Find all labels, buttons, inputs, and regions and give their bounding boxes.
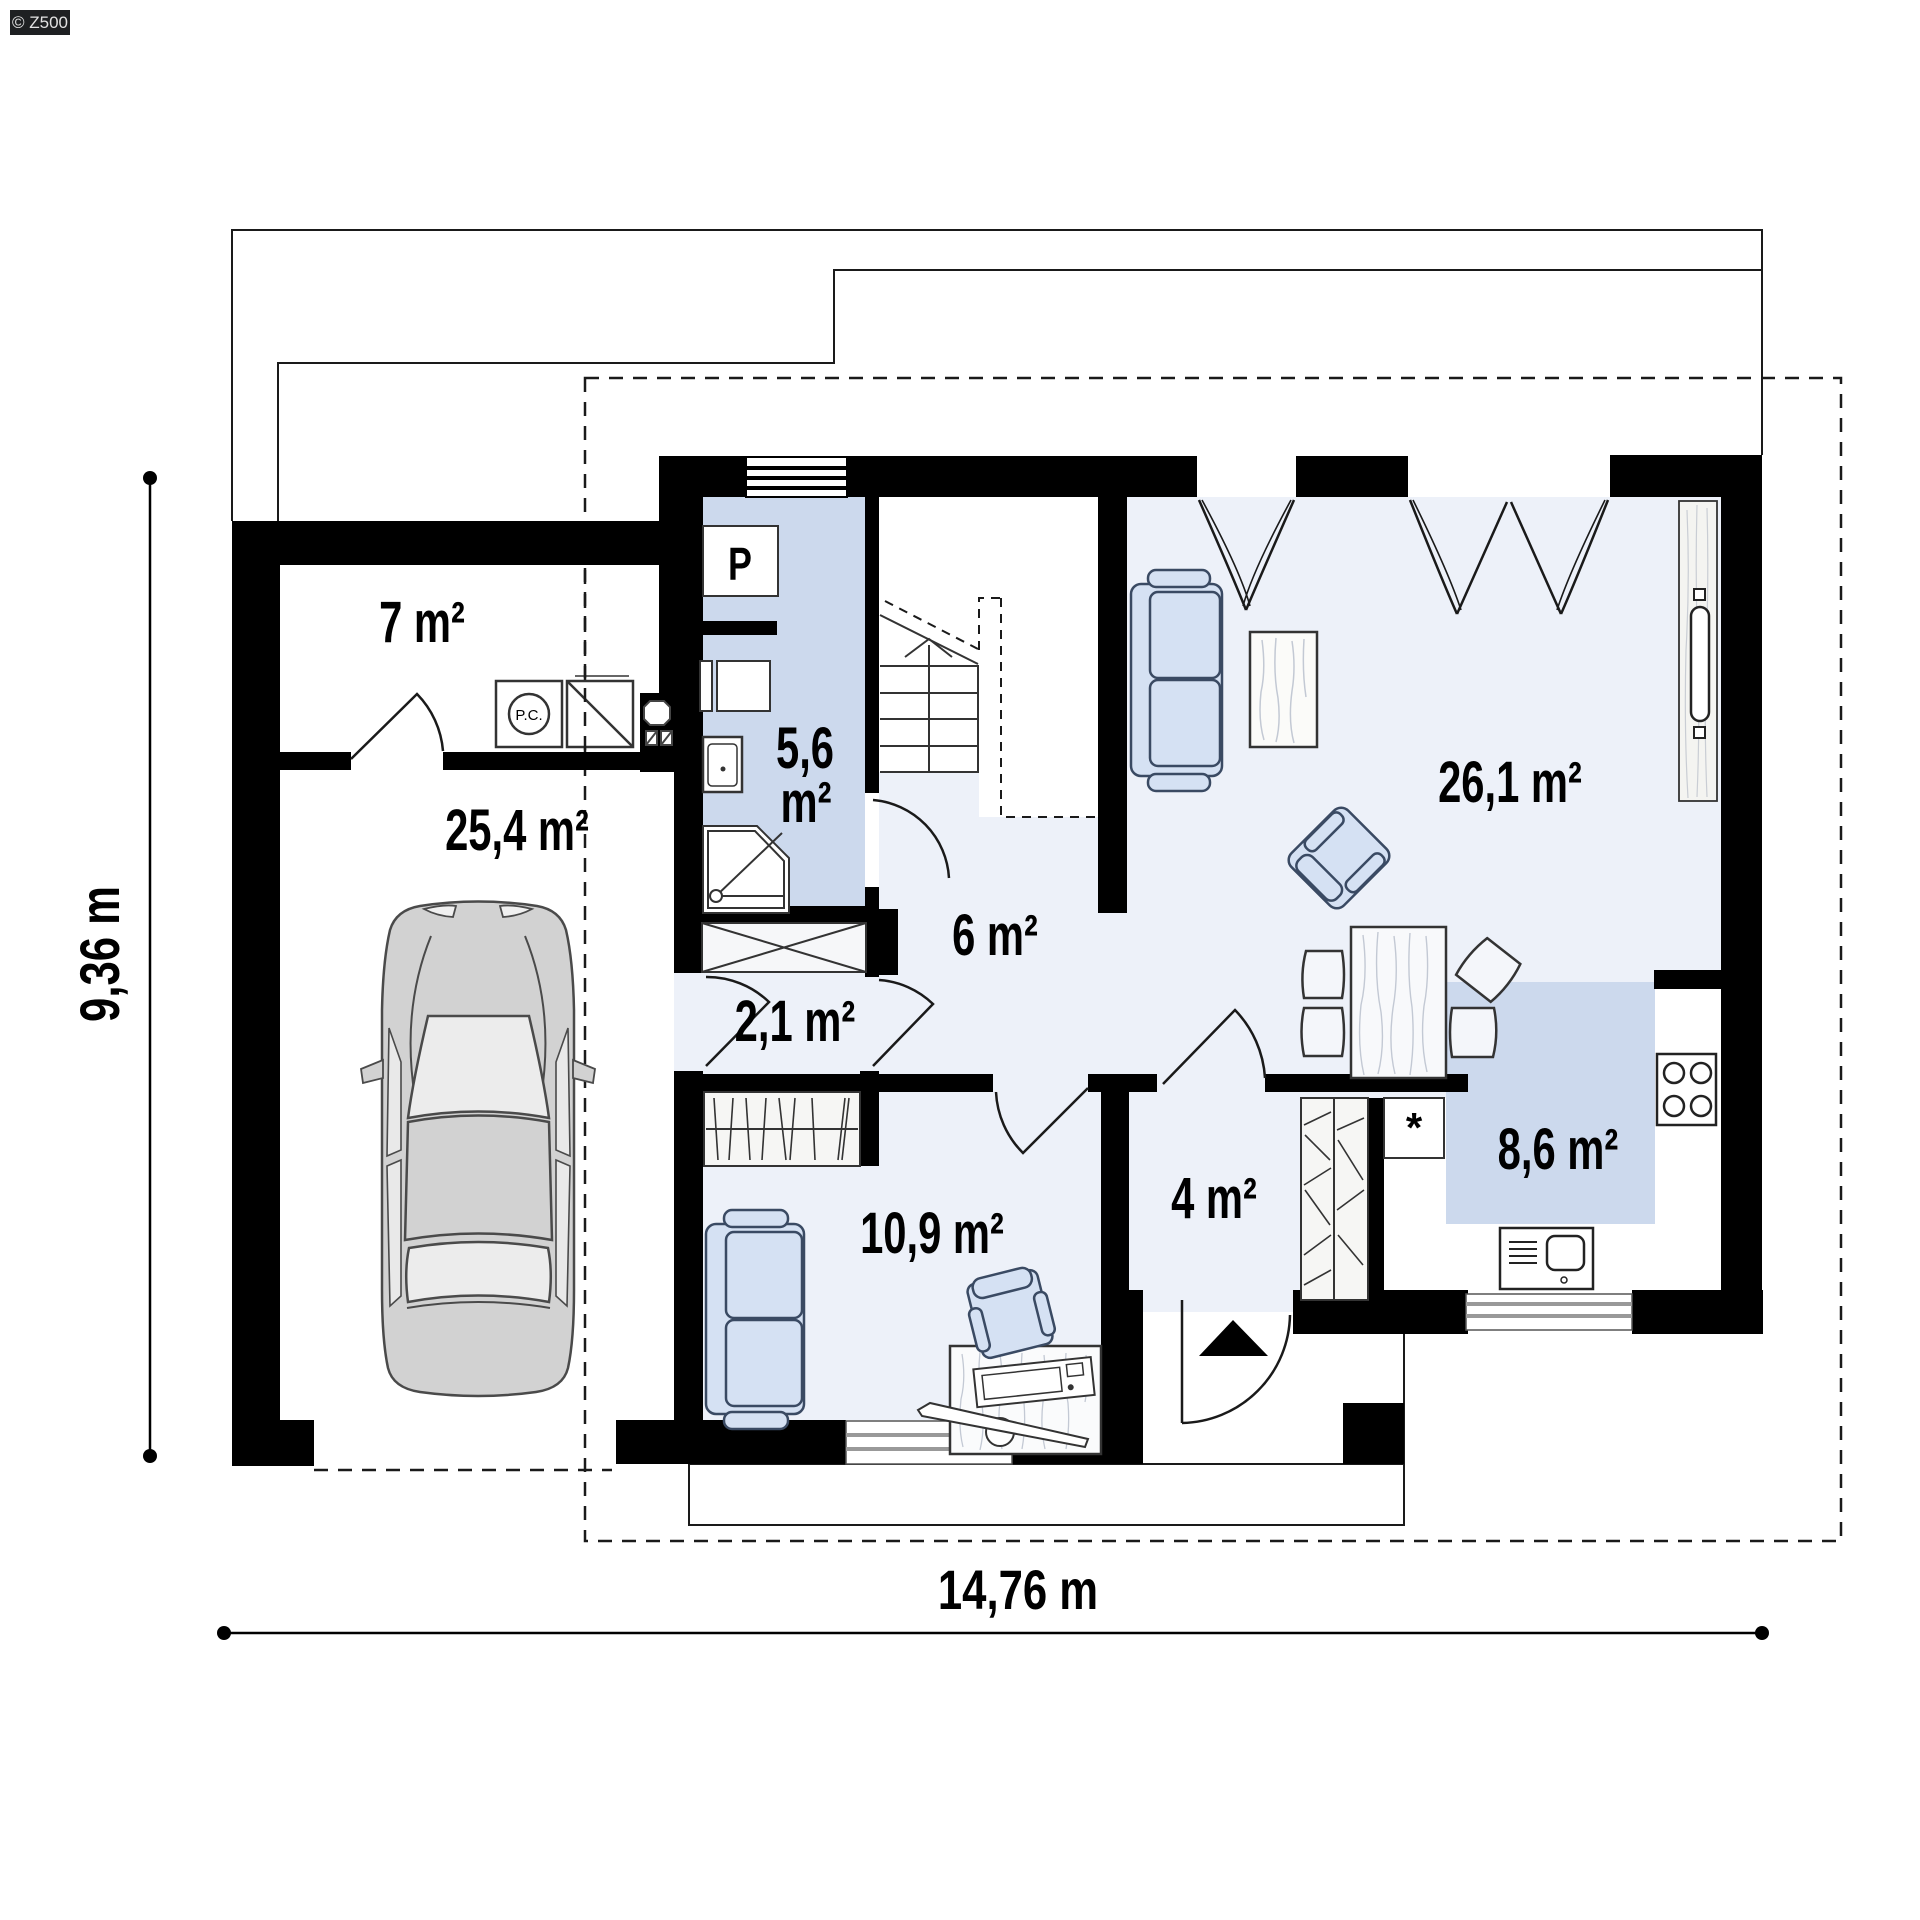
svg-text:10,9 m²: 10,9 m² [860, 1200, 1004, 1265]
svg-text:26,1 m²: 26,1 m² [1438, 749, 1582, 814]
svg-text:25,4 m²: 25,4 m² [445, 797, 589, 862]
svg-text:9,36 m: 9,36 m [69, 886, 131, 1022]
svg-text:2,1 m²: 2,1 m² [735, 988, 856, 1053]
svg-text:© Z500: © Z500 [12, 13, 68, 32]
svg-text:14,76 m: 14,76 m [938, 1559, 1098, 1621]
svg-text:P: P [728, 539, 752, 590]
svg-text:P.C.: P.C. [515, 707, 542, 724]
svg-text:7 m²: 7 m² [379, 589, 465, 654]
svg-text:4 m²: 4 m² [1171, 1165, 1257, 1230]
svg-text:m²: m² [780, 769, 831, 834]
svg-text:*: * [1406, 1104, 1423, 1151]
svg-text:6 m²: 6 m² [952, 902, 1038, 967]
svg-text:8,6 m²: 8,6 m² [1498, 1116, 1619, 1181]
